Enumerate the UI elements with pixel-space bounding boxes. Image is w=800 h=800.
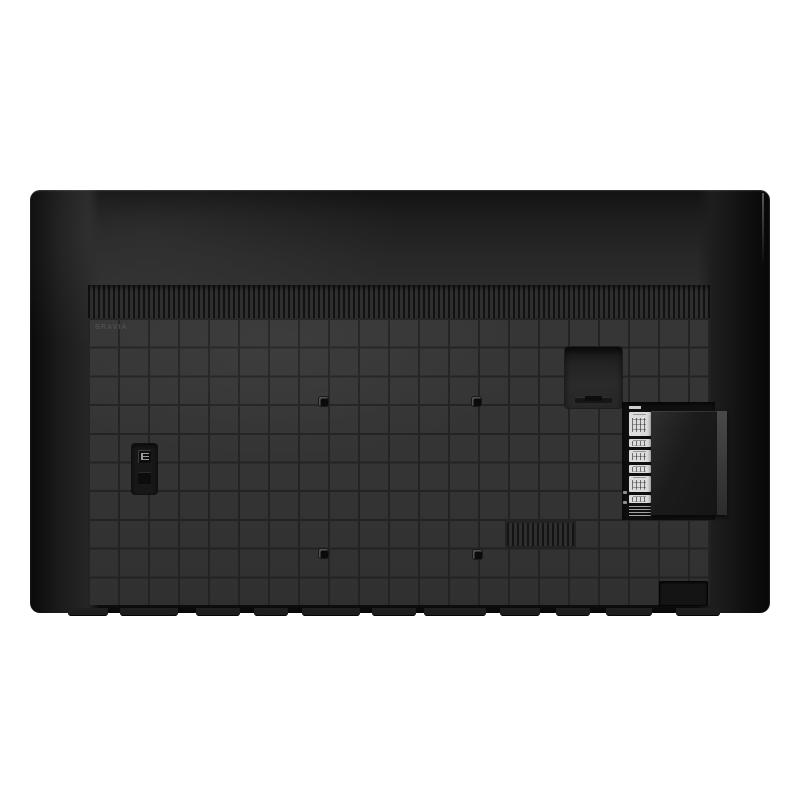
hdmi-port-icon: [629, 450, 651, 462]
port-label-strip: [629, 406, 651, 518]
ac-socket-icon: [138, 450, 151, 463]
stand-slot: [606, 608, 652, 616]
stand-slot: [120, 608, 178, 616]
vesa-hole-top-left: [319, 397, 328, 406]
power-inlet-recess: [132, 444, 157, 494]
stand-slot: [302, 608, 360, 616]
vesa-hole-top-right: [472, 397, 481, 406]
cover-plate-edge: [717, 411, 727, 515]
stand-slot: [424, 608, 486, 616]
stand-slot: [196, 608, 240, 616]
optical-audio-icon: [629, 495, 651, 503]
cable-holder-recess: [565, 347, 622, 408]
edge-highlight: [762, 193, 764, 265]
service-recess: [659, 581, 708, 606]
regulatory-info-text: [629, 506, 651, 516]
stand-slot: [68, 608, 108, 616]
back-cover: BRAVIA: [88, 285, 710, 605]
terminal-label-text: [629, 406, 641, 409]
stand-slot: [372, 608, 416, 616]
brand-label: BRAVIA: [95, 324, 127, 331]
ac-prongs-icon: [141, 453, 149, 460]
lan-port-icon: [629, 476, 651, 492]
stand-slot: [556, 608, 590, 616]
recess-connector: [585, 396, 602, 401]
inlet-lower-connector: [138, 472, 151, 484]
stand-slot: [254, 608, 288, 616]
usb-port-icon: [629, 465, 651, 473]
tv-back-panel: BRAVIA: [30, 190, 770, 613]
antenna-port-icon: [629, 412, 651, 436]
vesa-hole-bottom-right: [473, 550, 482, 559]
page-background: { "scene": { "type": "product-photo", "s…: [0, 0, 800, 800]
av-input-icon: [629, 439, 651, 447]
screw: [623, 491, 627, 494]
stand-slot: [500, 608, 540, 616]
vesa-hole-bottom-left: [319, 549, 328, 558]
screw: [623, 501, 627, 504]
bottom-vent-slats: [505, 521, 576, 548]
stand-slot: [676, 608, 720, 616]
top-vent-slats: [88, 285, 710, 318]
terminal-cover-plate: [651, 411, 727, 515]
